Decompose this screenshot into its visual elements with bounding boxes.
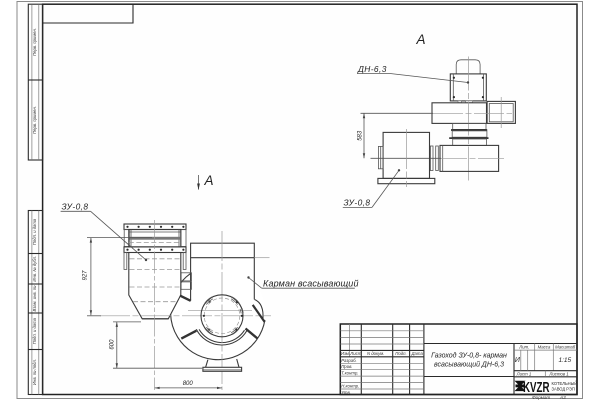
svg-text:Лист 1: Лист 1: [516, 371, 532, 376]
svg-text:Т.контр.: Т.контр.: [341, 371, 358, 376]
svg-text:Пров.: Пров.: [341, 364, 352, 369]
svg-text:всасывающий ДН-6,3: всасывающий ДН-6,3: [434, 361, 504, 369]
svg-text:Газоход ЗУ-0,8- карман: Газоход ЗУ-0,8- карман: [431, 352, 507, 360]
svg-text:A: A: [204, 173, 214, 188]
svg-text:Перв. примен.: Перв. примен.: [32, 106, 37, 134]
svg-text:Инв. № подл.: Инв. № подл.: [32, 359, 37, 385]
svg-text:ЗАВОД РЭП: ЗАВОД РЭП: [552, 387, 575, 392]
svg-text:N докум.: N докум.: [367, 351, 384, 356]
svg-text:KVZR: KVZR: [523, 379, 550, 396]
svg-text:Н.контр.: Н.контр.: [341, 384, 359, 389]
svg-text:927: 927: [83, 270, 89, 281]
svg-text:1:15: 1:15: [558, 357, 571, 364]
svg-text:Взам. инв. №: Взам. инв. №: [32, 285, 37, 311]
svg-text:ЗУ-0,8: ЗУ-0,8: [344, 198, 371, 208]
svg-text:Листов 1: Листов 1: [548, 371, 569, 376]
svg-text:КОТЕЛЬНЫЙ: КОТЕЛЬНЫЙ: [552, 381, 578, 386]
svg-text:ДН-6,3: ДН-6,3: [357, 64, 387, 74]
svg-text:Перв. примен.: Перв. примен.: [32, 28, 37, 56]
svg-text:Лит.: Лит.: [518, 345, 529, 350]
svg-text:600: 600: [110, 339, 116, 350]
svg-text:Формат: Формат: [532, 395, 550, 400]
svg-text:ЗУ-0,8: ЗУ-0,8: [62, 202, 89, 212]
svg-text:583: 583: [357, 130, 363, 141]
svg-text:Изм.: Изм.: [341, 351, 350, 356]
svg-text:Подп. и дата: Подп. и дата: [32, 218, 37, 245]
svg-text:А3: А3: [559, 395, 566, 400]
svg-text:Подп.: Подп.: [395, 351, 406, 356]
svg-text:Карман всасывающий: Карман всасывающий: [263, 279, 359, 289]
svg-text:Лист: Лист: [349, 351, 361, 356]
svg-text:Дата: Дата: [411, 351, 424, 356]
svg-text:800: 800: [183, 381, 194, 387]
svg-text:Подп. и дата: Подп. и дата: [32, 317, 37, 344]
svg-text:Разраб.: Разраб.: [341, 358, 357, 363]
svg-text:A: A: [416, 32, 426, 47]
svg-text:Утв.: Утв.: [341, 390, 351, 395]
svg-text:Масса: Масса: [538, 345, 551, 350]
svg-text:Инв. № дубл.: Инв. № дубл.: [32, 256, 37, 282]
svg-text:Масштаб: Масштаб: [555, 345, 576, 350]
